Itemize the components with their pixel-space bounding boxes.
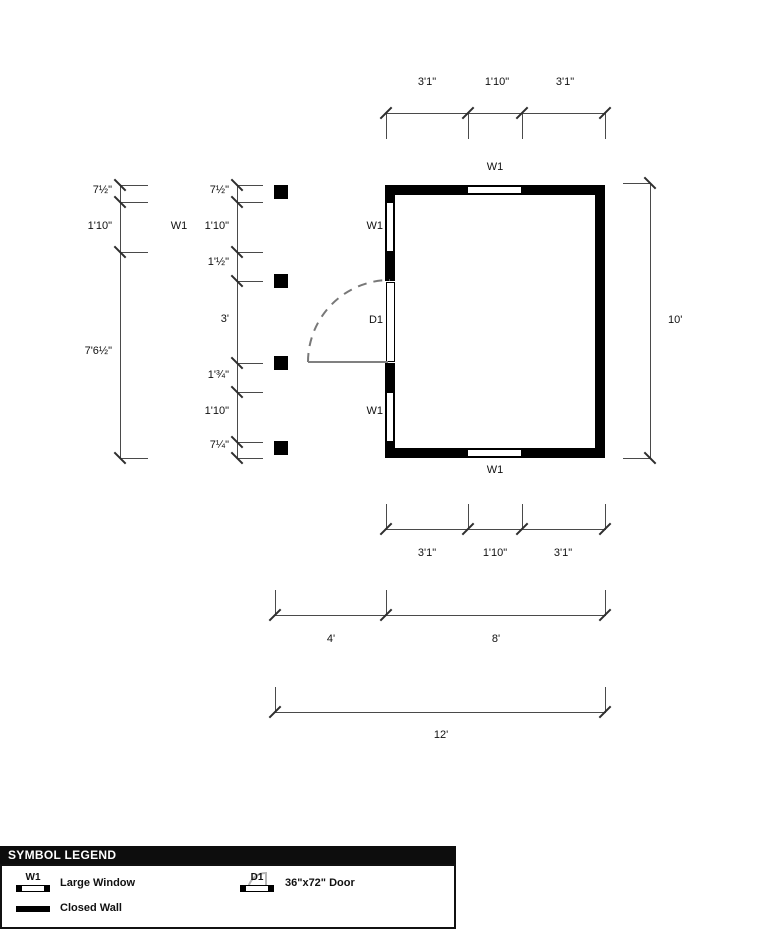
large-window-icon — [16, 885, 50, 892]
dim-split-line — [275, 615, 605, 616]
porch-post-3 — [274, 356, 288, 370]
dim-left-outer-label-2: 1'10" — [52, 220, 112, 233]
dim-right-label: 10' — [668, 314, 682, 327]
window-label-bottom: W1 — [473, 464, 517, 477]
window-left-lower — [386, 392, 394, 442]
dim-left-inner-stub — [237, 392, 263, 393]
window-top — [467, 186, 522, 194]
wall-right — [595, 185, 605, 458]
dim-top-stub — [468, 113, 469, 139]
dim-top-line — [386, 113, 605, 114]
dim-left-inner-stub — [237, 185, 263, 186]
dim-total-label: 12' — [419, 729, 463, 742]
dim-left-outer-label-3: 7'6½" — [52, 345, 112, 358]
closed-wall-icon — [16, 906, 50, 912]
dim-bottom-label-2: 1'10" — [473, 547, 517, 560]
legend-window-code: W1 — [16, 872, 50, 883]
porch-post-4 — [274, 441, 288, 455]
dim-bottom-label-1: 3'1" — [405, 547, 449, 560]
legend-header: SYMBOL LEGEND — [0, 846, 456, 864]
dim-left-inner-label-1: 7½" — [169, 184, 229, 197]
legend-title: SYMBOL LEGEND — [8, 848, 116, 862]
legend-door-code: D1 — [240, 872, 274, 883]
dim-top-label-3: 3'1" — [543, 76, 587, 89]
dim-left-inner-label-7: 7¼" — [169, 439, 229, 452]
dim-top-stub — [386, 113, 387, 139]
dim-right-line — [650, 183, 651, 459]
dim-bottom-line — [386, 529, 605, 530]
dim-left-inner-stub — [237, 442, 263, 443]
legend-wall-label: Closed Wall — [60, 902, 122, 914]
dim-left-inner-stub — [237, 363, 263, 364]
window-label-dim-side: W1 — [161, 220, 197, 233]
door-label: D1 — [339, 314, 383, 327]
dim-top-label-1: 3'1" — [405, 76, 449, 89]
dim-left-outer-stub — [120, 185, 148, 186]
porch-post-1 — [274, 185, 288, 199]
dim-total-line — [275, 712, 605, 713]
dim-right-stub — [623, 458, 650, 459]
dim-left-inner-stub — [237, 252, 263, 253]
dim-left-inner-label-6: 1'10" — [169, 405, 229, 418]
dim-top-stub — [605, 113, 606, 139]
dim-split-label-2: 8' — [474, 633, 518, 646]
dim-left-outer-stub — [120, 252, 148, 253]
dim-top-label-2: 1'10" — [475, 76, 519, 89]
dim-left-outer-label-1: 7½" — [52, 184, 112, 197]
legend-window-label: Large Window — [60, 877, 135, 889]
dim-left-inner-stub — [237, 458, 263, 459]
dim-left-inner-label-4: 3' — [169, 313, 229, 326]
dim-left-inner-label-3: 1'½" — [169, 256, 229, 269]
porch-post-2 — [274, 274, 288, 288]
window-label-left-upper: W1 — [339, 220, 383, 233]
dim-left-outer-stub — [120, 458, 148, 459]
door-icon — [240, 885, 274, 892]
dim-split-label-1: 4' — [309, 633, 353, 646]
window-label-left-lower: W1 — [339, 405, 383, 418]
dim-left-inner-line — [237, 185, 238, 458]
dim-bottom-label-3: 3'1" — [541, 547, 585, 560]
dim-right-stub — [623, 183, 650, 184]
floor-plan-canvas: 3'1" 1'10" 3'1" 3'1" 1'10" 3'1" 4' 8' 12… — [0, 0, 763, 929]
dim-left-outer-stub — [120, 202, 148, 203]
window-label-top: W1 — [473, 161, 517, 174]
dim-left-outer-line — [120, 185, 121, 458]
dim-top-stub — [522, 113, 523, 139]
window-left-upper — [386, 202, 394, 252]
dim-left-inner-stub — [237, 202, 263, 203]
dim-left-inner-stub — [237, 281, 263, 282]
window-bottom — [467, 449, 522, 457]
legend-door-label: 36"x72" Door — [285, 877, 355, 889]
legend-body: W1 Large Window D1 36"x72" Door Closed W… — [0, 864, 456, 929]
dim-left-inner-label-5: 1'¾" — [169, 369, 229, 382]
